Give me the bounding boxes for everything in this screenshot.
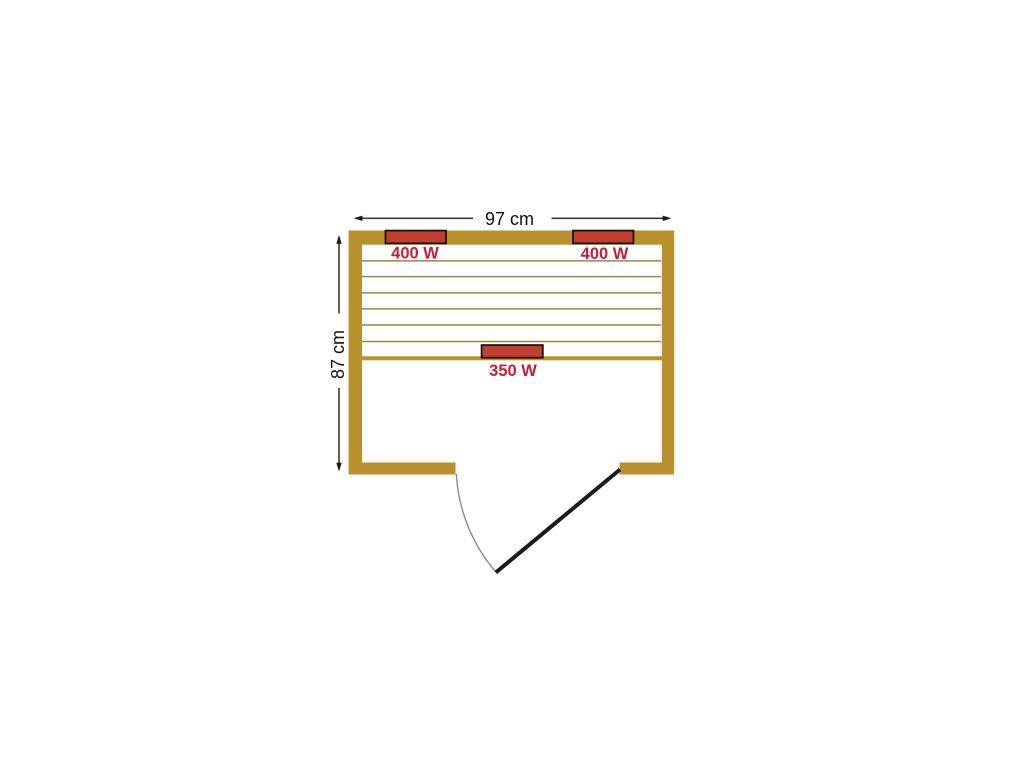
svg-text:97 cm: 97 cm xyxy=(485,209,534,229)
svg-text:87 cm: 87 cm xyxy=(328,330,348,379)
svg-text:400 W: 400 W xyxy=(391,245,439,263)
svg-text:400 W: 400 W xyxy=(581,245,629,263)
svg-text:350 W: 350 W xyxy=(489,362,537,380)
